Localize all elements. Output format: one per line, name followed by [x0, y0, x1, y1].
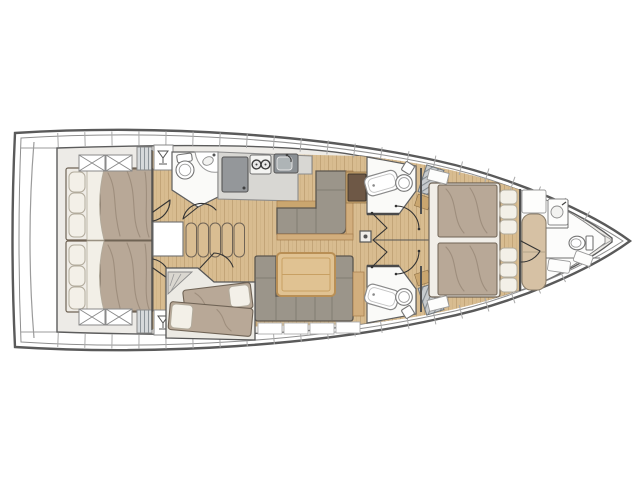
faucet-icon	[213, 154, 216, 157]
seatback-shelf	[277, 201, 316, 208]
mast-icon	[360, 231, 371, 242]
hanging-locker	[154, 145, 173, 170]
salon-table	[277, 253, 335, 296]
galley	[218, 152, 312, 201]
pillows	[69, 245, 85, 309]
pillows	[69, 172, 85, 237]
sink-icon	[548, 199, 568, 225]
pillow	[228, 284, 250, 307]
settee-trim	[353, 272, 364, 316]
refrigerator	[222, 157, 248, 192]
galley-sink	[274, 154, 298, 173]
yacht-floor-plan-page	[0, 0, 640, 480]
hatch-cross-icon	[106, 155, 132, 171]
hatch-cross-icon	[79, 155, 105, 171]
engine-hatch	[153, 222, 183, 256]
nav-table	[346, 172, 368, 203]
toilet-icon	[569, 236, 593, 250]
yacht-floor-plan	[0, 0, 640, 480]
stairs-icon	[186, 223, 245, 257]
mattress	[100, 169, 153, 240]
hatch-cross-icon	[106, 309, 132, 325]
louver-icon	[137, 147, 152, 170]
berth-head	[522, 190, 546, 213]
mattress	[100, 241, 153, 311]
louver-icon	[137, 310, 152, 333]
aft-cabin-port	[66, 168, 153, 240]
hatch-cross-icon	[79, 309, 105, 325]
pillow	[170, 304, 193, 330]
aft-cabin-starboard	[66, 241, 153, 312]
toilet-icon	[176, 153, 194, 179]
stove-burners-icon	[250, 155, 271, 174]
sink-icon	[277, 157, 292, 170]
